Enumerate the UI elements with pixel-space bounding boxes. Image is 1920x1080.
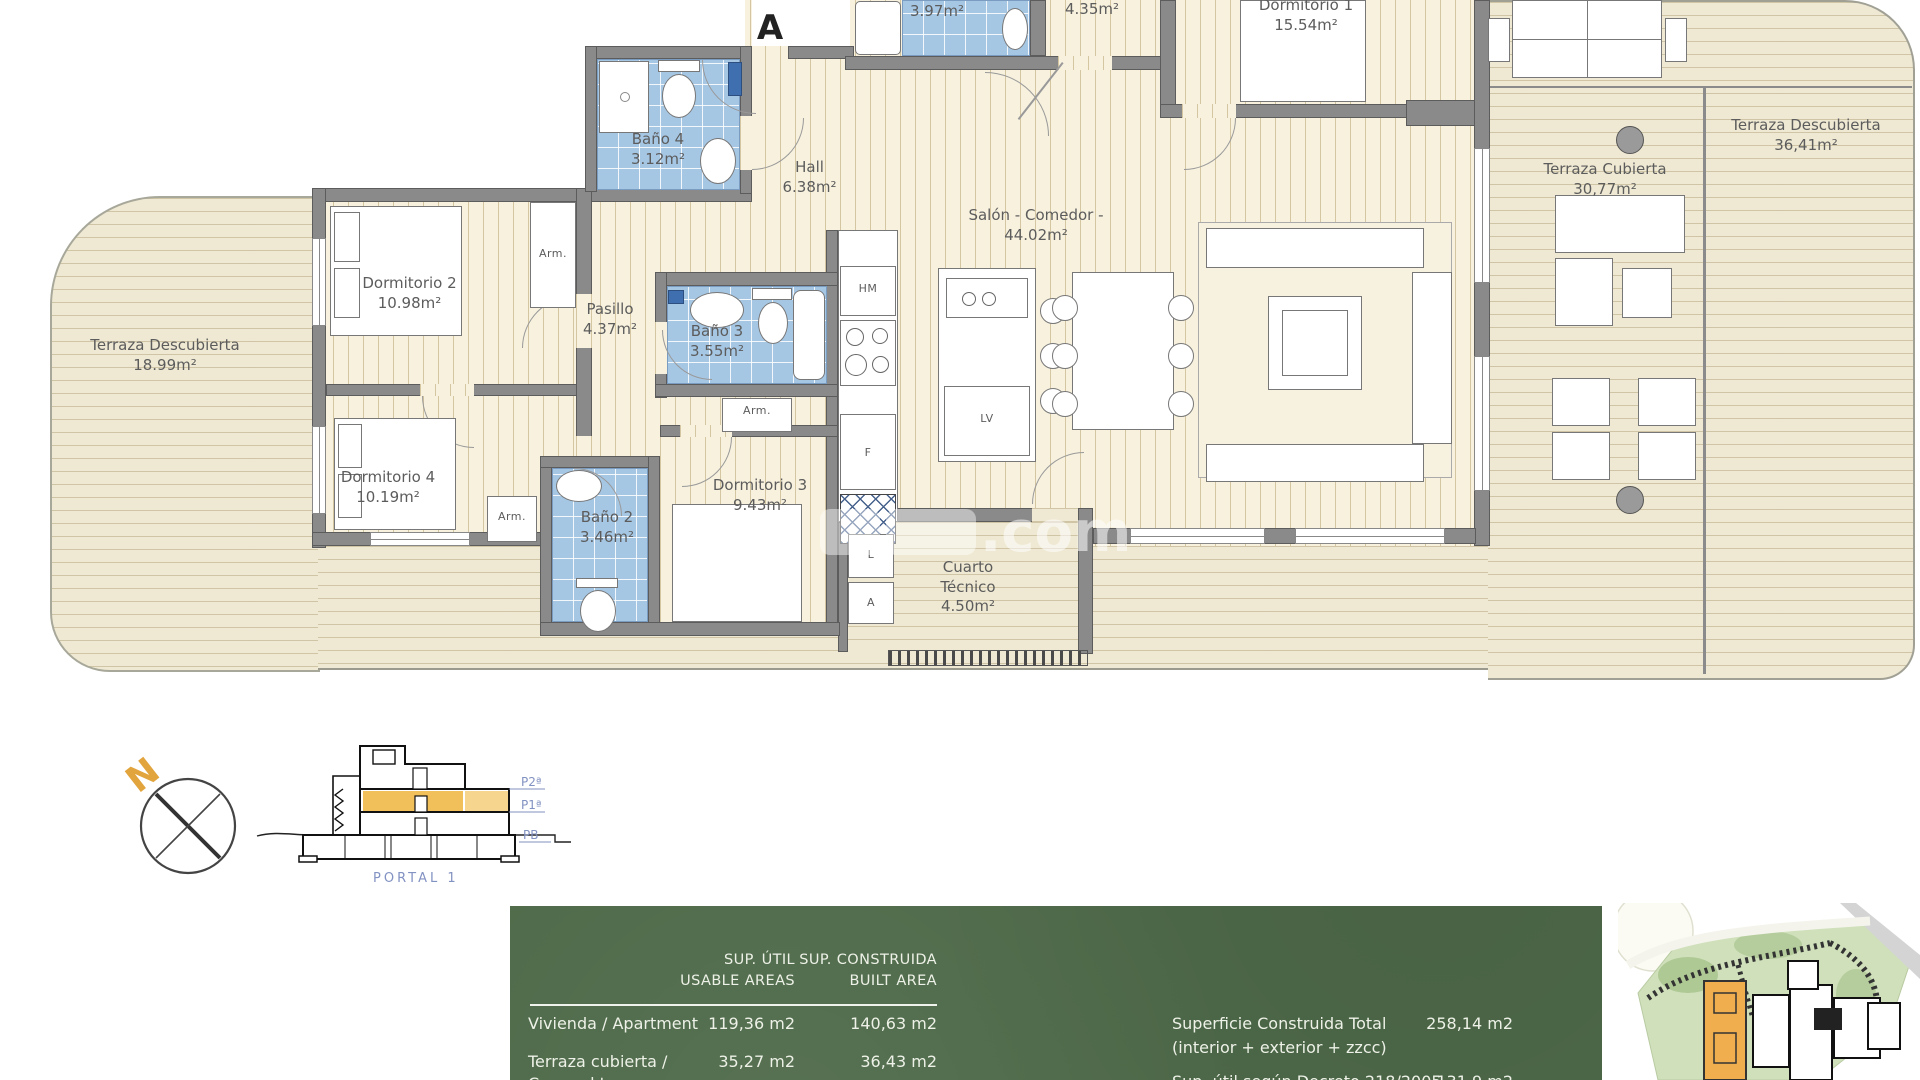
highlighted-building bbox=[1704, 981, 1746, 1080]
wall bbox=[540, 456, 660, 468]
building-section-diagram: P2ª P1ª PB PORTAL 1 bbox=[255, 736, 575, 888]
window bbox=[1474, 356, 1490, 491]
lounge-chair bbox=[1638, 378, 1696, 426]
wall bbox=[1160, 0, 1176, 118]
label-dormitorio1: Dormitorio 115.54m² bbox=[1242, 0, 1370, 35]
label-pasillo: Pasillo4.37m² bbox=[568, 300, 652, 339]
chair bbox=[1052, 295, 1078, 321]
wall bbox=[585, 46, 597, 192]
steps-hatch bbox=[888, 650, 1088, 666]
floor-label-p2: P2ª bbox=[521, 775, 542, 789]
burner bbox=[845, 354, 867, 376]
decreto-value: 131,9 m2 bbox=[1390, 1072, 1513, 1080]
table-row-util: 119,36 m2 bbox=[660, 1014, 795, 1033]
chair bbox=[1168, 343, 1194, 369]
bed bbox=[672, 504, 802, 622]
portal-label: PORTAL 1 bbox=[373, 871, 459, 886]
watermark-blob bbox=[886, 509, 976, 555]
door-opening bbox=[740, 116, 752, 170]
terrace-sofa bbox=[1555, 195, 1685, 253]
wall bbox=[648, 456, 660, 636]
table-row-label2: Covered terrace bbox=[528, 1074, 748, 1080]
label-dormitorio2: Dormitorio 210.98m² bbox=[352, 274, 467, 313]
toilet-tank bbox=[658, 60, 700, 72]
entrance-label: A bbox=[748, 8, 792, 48]
terrace-chair bbox=[1665, 18, 1687, 62]
floor-label-pb: PB bbox=[523, 828, 538, 842]
window bbox=[1474, 148, 1490, 283]
window bbox=[312, 238, 326, 326]
wall bbox=[826, 230, 838, 430]
window bbox=[370, 532, 470, 546]
lounge-chair bbox=[1638, 432, 1696, 480]
highlighted-floor bbox=[363, 791, 463, 812]
shower-drain bbox=[620, 92, 630, 102]
white-cutout-top bbox=[585, 0, 745, 46]
coffee-table-inner bbox=[1282, 310, 1348, 376]
label-bano-top-area: 3.97m² bbox=[905, 2, 969, 22]
label-closet: Arm. bbox=[532, 247, 574, 260]
lounge-chair bbox=[1552, 378, 1610, 426]
wall bbox=[312, 188, 752, 202]
table-row-util: 35,27 m2 bbox=[660, 1052, 795, 1071]
site-plan-map bbox=[1618, 903, 1920, 1080]
label-appliance-hm: HM bbox=[853, 282, 883, 295]
wall bbox=[1030, 0, 1046, 56]
lounge-chair bbox=[1552, 432, 1610, 480]
chair bbox=[1168, 391, 1194, 417]
terrace-divider-line bbox=[1703, 88, 1706, 674]
faucet bbox=[982, 292, 996, 306]
chair bbox=[1168, 295, 1194, 321]
total-built-value: 258,14 m2 bbox=[1390, 1014, 1513, 1033]
watermark-text: .com bbox=[980, 500, 1131, 565]
label-closet: Arm. bbox=[722, 404, 792, 417]
table-row-construida: 36,43 m2 bbox=[800, 1052, 937, 1071]
window bbox=[312, 426, 326, 514]
watermark-blob bbox=[820, 509, 880, 555]
label-appliance-a: A bbox=[863, 596, 879, 609]
label-appliance-lv: LV bbox=[972, 412, 1002, 425]
wardrobe-block bbox=[1406, 100, 1476, 126]
label-salon-comedor: Salón - Comedor -44.02m² bbox=[962, 206, 1110, 245]
sink bbox=[700, 138, 736, 184]
label-bano3: Baño 33.55m² bbox=[676, 322, 758, 361]
label-dormitorio4: Dormitorio 410.19m² bbox=[338, 468, 438, 507]
area-summary-table: SUP. ÚTILUSABLE AREAS SUP. CONSTRUIDABUI… bbox=[510, 906, 1602, 1080]
door-opening bbox=[420, 384, 474, 396]
wall bbox=[540, 456, 552, 636]
terrace-dining-table bbox=[1512, 0, 1662, 78]
column bbox=[1616, 486, 1644, 514]
door-opening bbox=[1058, 56, 1112, 70]
terrace-left bbox=[50, 196, 320, 672]
built-area-header: SUP. CONSTRUIDABUILT AREA bbox=[780, 950, 937, 992]
sink bbox=[1002, 8, 1028, 50]
terrace-boundary-line bbox=[1488, 86, 1912, 88]
north-label: N bbox=[118, 756, 167, 801]
sofa bbox=[1412, 272, 1452, 444]
pillow bbox=[338, 424, 362, 468]
toilet-tank bbox=[576, 578, 618, 588]
wall bbox=[655, 272, 838, 286]
total-built-label2: (interior + exterior + zzcc) bbox=[1172, 1038, 1452, 1057]
chair bbox=[1052, 343, 1078, 369]
table-divider bbox=[530, 1004, 937, 1006]
pillow bbox=[334, 212, 360, 262]
label-bano4: Baño 43.12m² bbox=[618, 130, 698, 169]
floor-label-p1: P1ª bbox=[521, 798, 542, 812]
floor-plan-page: Terraza Descubierta18.99m² Dormitorio 21… bbox=[0, 0, 1920, 1080]
burner bbox=[872, 356, 889, 373]
door-opening bbox=[1182, 104, 1236, 118]
usable-areas-header: SUP. ÚTILUSABLE AREAS bbox=[660, 950, 795, 992]
label-room-435-area: 4.35m² bbox=[1060, 0, 1124, 20]
terrace-table bbox=[1622, 268, 1672, 318]
label-bano2: Baño 23.46m² bbox=[566, 508, 648, 547]
terrace-chair bbox=[1488, 18, 1510, 62]
sofa bbox=[1206, 228, 1424, 268]
dining-table bbox=[1072, 272, 1174, 430]
bathtub bbox=[793, 290, 825, 380]
column bbox=[1616, 126, 1644, 154]
table-row-construida: 140,63 m2 bbox=[800, 1014, 937, 1033]
label-closet: Arm. bbox=[486, 510, 538, 523]
terrace-right bbox=[1488, 0, 1915, 680]
wall bbox=[655, 384, 838, 397]
wall bbox=[585, 46, 752, 59]
compass-icon: N bbox=[118, 756, 248, 881]
label-hall: Hall6.38m² bbox=[762, 158, 857, 197]
toilet bbox=[758, 302, 788, 344]
label-appliance-f: F bbox=[860, 446, 876, 459]
toilet bbox=[580, 590, 616, 632]
burner bbox=[872, 328, 888, 344]
terrace-sofa bbox=[1555, 258, 1613, 326]
watermark: .com bbox=[820, 492, 1180, 572]
label-terraza-cubierta: Terraza Cubierta30,77m² bbox=[1538, 160, 1672, 199]
radiator bbox=[668, 290, 684, 304]
toilet bbox=[662, 74, 696, 118]
sofa bbox=[1206, 444, 1424, 482]
label-terraza-izquierda: Terraza Descubierta18.99m² bbox=[80, 336, 250, 375]
toilet-tank bbox=[752, 288, 792, 300]
chair bbox=[1052, 391, 1078, 417]
wall bbox=[845, 56, 1175, 70]
burner bbox=[846, 328, 864, 346]
faucet bbox=[962, 292, 976, 306]
label-terraza-derecha: Terraza Descubierta36,41m² bbox=[1722, 116, 1890, 155]
bathtub bbox=[855, 1, 901, 55]
label-dormitorio3: Dormitorio 39.43m² bbox=[698, 476, 822, 515]
window bbox=[1295, 528, 1445, 544]
